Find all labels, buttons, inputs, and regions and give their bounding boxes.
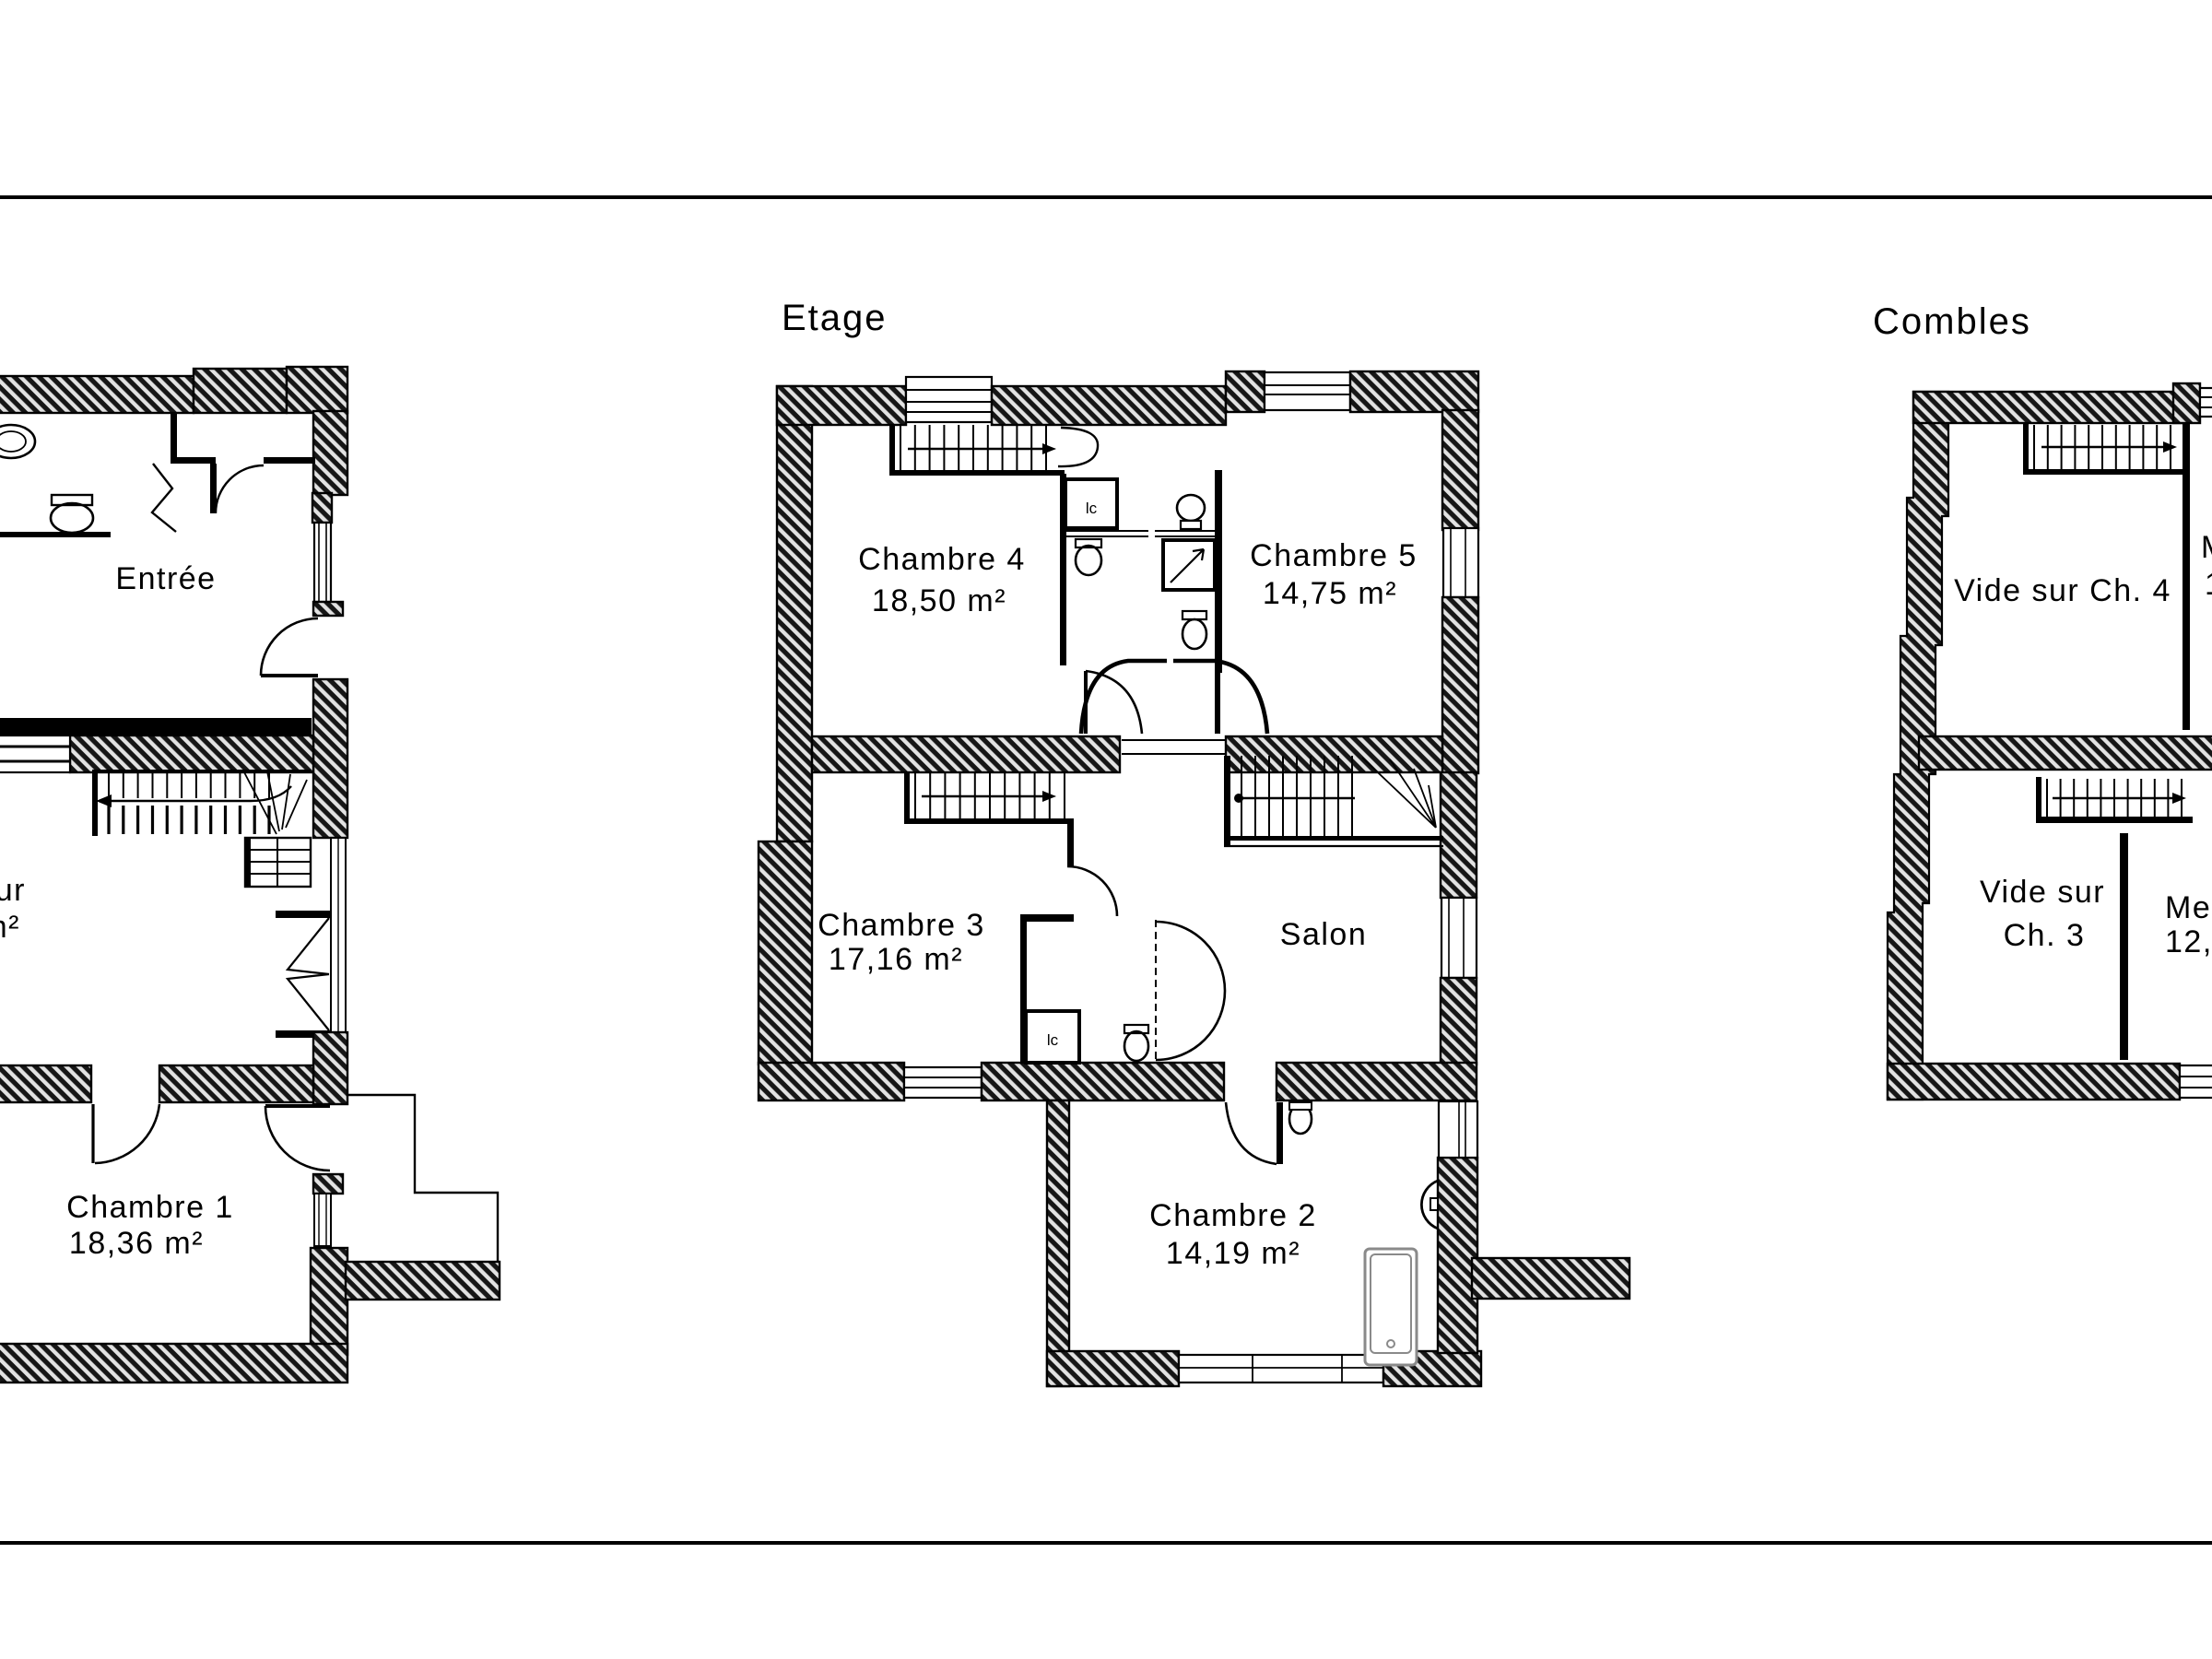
svg-text:14,75 m²: 14,75 m² (1263, 576, 1397, 611)
svg-text:12,6: 12,6 (2165, 924, 2212, 959)
svg-text:Salon: Salon (1280, 917, 1367, 952)
svg-text:Chambre 2: Chambre 2 (1149, 1198, 1317, 1233)
svg-text:17,16 m²: 17,16 m² (829, 942, 963, 977)
svg-text:Chambre 4: Chambre 4 (858, 542, 1026, 577)
svg-text:m²: m² (0, 910, 20, 945)
svg-text:18,50 m²: 18,50 m² (872, 583, 1006, 618)
svg-text:Chambre 1: Chambre 1 (66, 1190, 234, 1225)
svg-text:14,19 m²: 14,19 m² (1166, 1236, 1300, 1271)
svg-text:Mez: Mez (2165, 890, 2212, 925)
svg-text:Vide sur Ch. 4: Vide sur Ch. 4 (1954, 573, 2171, 608)
svg-text:Combles: Combles (1873, 301, 2031, 342)
svg-text:Ch. 3: Ch. 3 (2004, 918, 2086, 953)
svg-text:Etage: Etage (782, 298, 888, 338)
svg-text:ur: ur (0, 873, 26, 908)
svg-text:Entrée: Entrée (115, 561, 216, 596)
svg-text:lc: lc (1047, 1031, 1059, 1049)
svg-text:Me: Me (2201, 530, 2212, 565)
svg-text:Chambre 3: Chambre 3 (818, 908, 985, 943)
svg-text:14: 14 (2205, 567, 2212, 602)
svg-text:18,36 m²: 18,36 m² (69, 1226, 204, 1261)
svg-text:Vide sur: Vide sur (1980, 875, 2105, 910)
svg-text:Chambre 5: Chambre 5 (1250, 538, 1418, 573)
svg-text:lc: lc (1086, 500, 1098, 517)
